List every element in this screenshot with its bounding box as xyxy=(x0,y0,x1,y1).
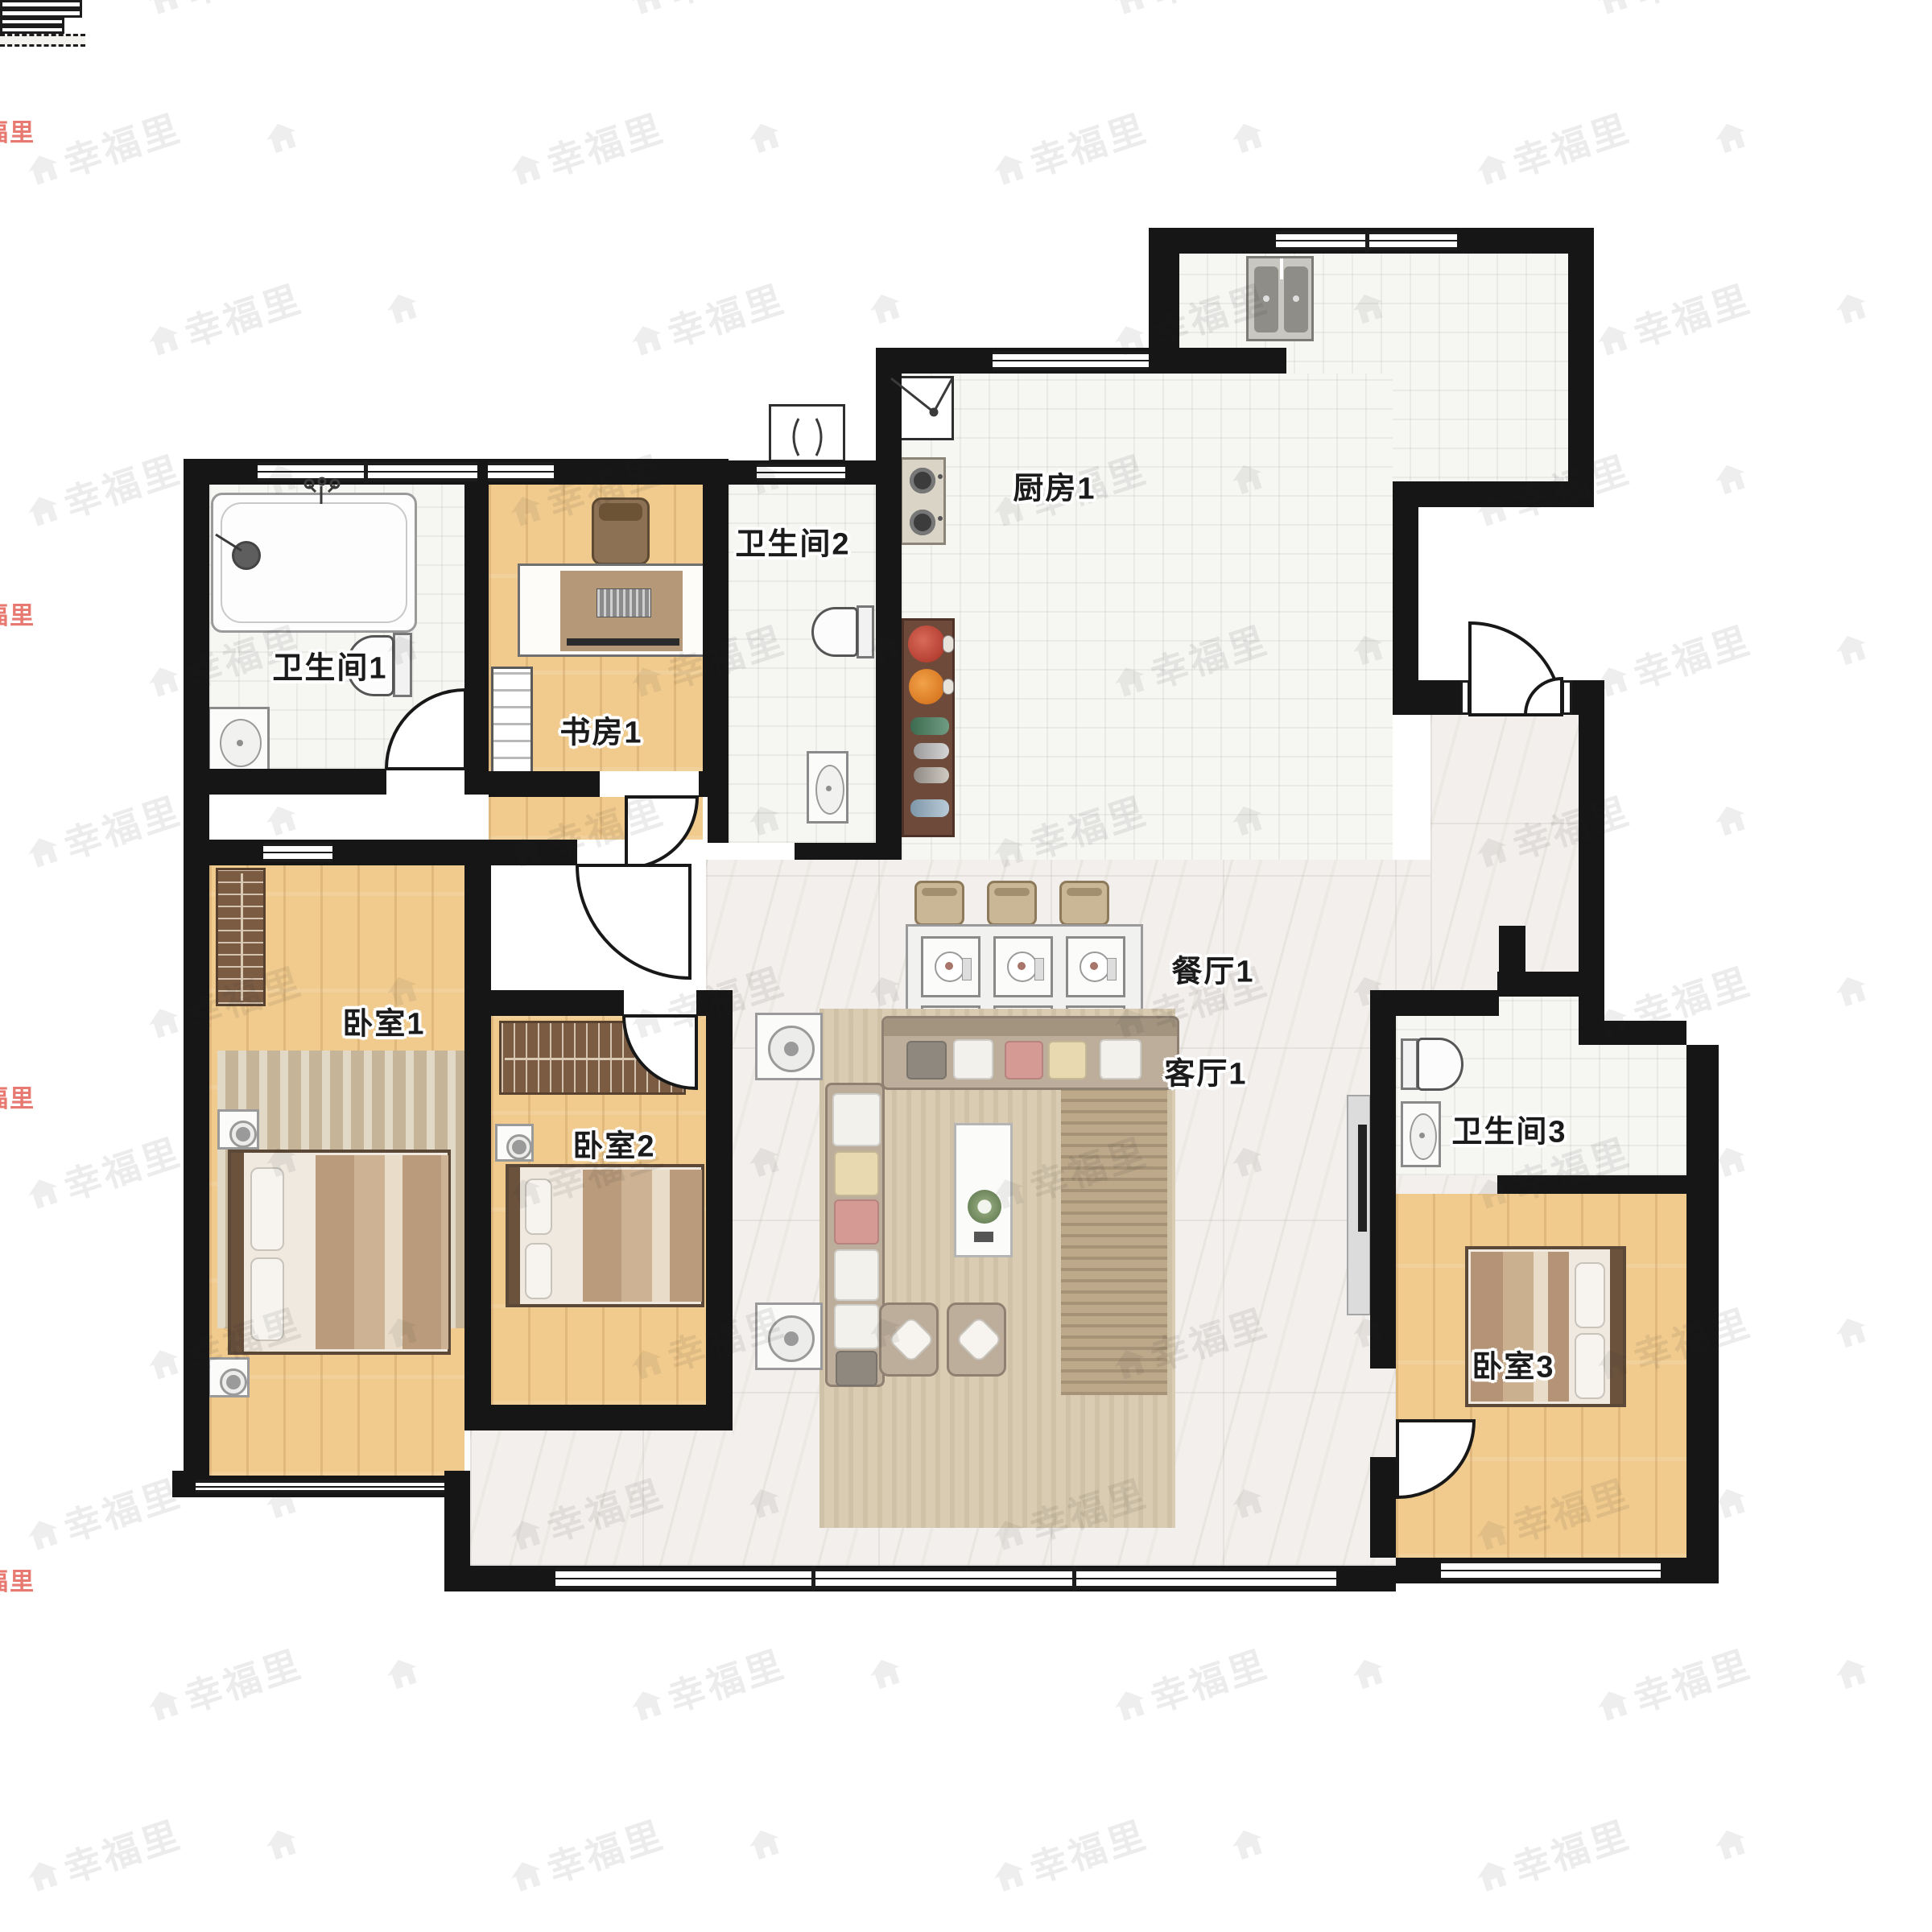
washer-drum-icon xyxy=(794,419,821,456)
floor-plan: 幸福里幸福里幸福里幸福里幸福里幸福里幸福里幸福里幸福里幸福里幸福里幸福里幸福里幸… xyxy=(0,0,1932,1932)
edge-watermark: 幸福里 xyxy=(0,1079,35,1114)
room-label-living1: 客厅1 xyxy=(1164,1049,1247,1093)
room-label-dining1: 餐厅1 xyxy=(1171,947,1254,991)
bedroom3-door xyxy=(1397,1421,1474,1497)
bathtub-faucet-icon xyxy=(309,485,335,504)
study1-door xyxy=(626,797,697,868)
room-label-bedroom1: 卧室1 xyxy=(342,999,425,1043)
room-label-kitchen1: 厨房1 xyxy=(1013,464,1096,508)
bedroom1-door xyxy=(577,865,690,978)
edge-watermark: 幸福里 xyxy=(0,596,35,631)
room-label-bathroom3: 卫生间3 xyxy=(1451,1107,1567,1151)
room-label-bathroom1: 卫生间1 xyxy=(272,643,387,687)
room-label-bedroom3: 卧室3 xyxy=(1472,1342,1554,1386)
room-label-study1: 书房1 xyxy=(559,708,642,752)
corner-unit-lines xyxy=(891,378,952,412)
room-label-bedroom2: 卧室2 xyxy=(572,1121,655,1166)
bathroom1-door xyxy=(386,690,465,769)
shower-hose xyxy=(216,535,242,551)
room-label-bathroom2: 卫生间2 xyxy=(735,519,850,563)
edge-watermark: 幸福里 xyxy=(0,1562,35,1597)
edge-watermark: 幸福里 xyxy=(0,113,35,148)
bedroom2-door xyxy=(624,1016,696,1088)
